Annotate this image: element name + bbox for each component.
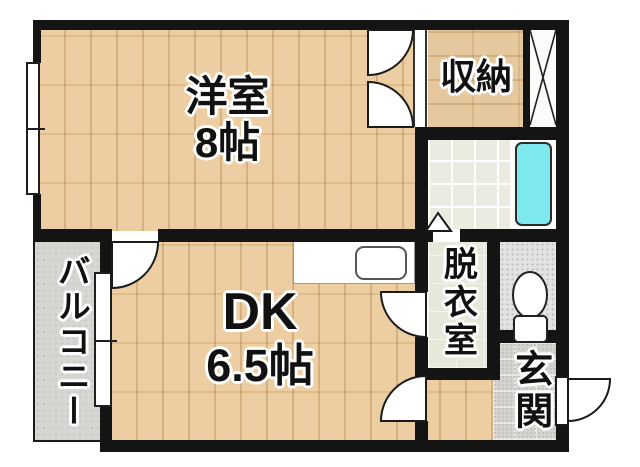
door-arc-passage [381,376,426,421]
closet-label: 収納 [424,57,528,97]
entrance-label: 玄関 [508,349,550,441]
floorplan-canvas: 洋室 8帖 収納 DK 6.5帖 バルコニー 脱衣室 玄関 [0,0,640,467]
entrance-door-leaf [556,377,568,425]
dk-label: DK 6.5帖 [150,284,370,391]
western-room-name: 洋室 [115,74,340,120]
western-room-label: 洋室 8帖 [115,74,340,166]
door-arc-entrance [568,379,610,421]
western-room-size: 8帖 [115,120,340,166]
door-arc-yoshitsu-dk [112,242,158,288]
door-arc-closet-lower [368,82,413,127]
balcony-label: バルコニー [53,254,89,439]
toilet-icon [513,272,547,342]
door-arc-dressing [381,292,426,337]
dk-name: DK [150,284,370,341]
pipe-space-x-icon [530,30,556,125]
dressing-room-label: 脱衣室 [438,246,475,374]
door-arc-closet-upper [368,30,413,75]
bath-door-triangle-icon [426,213,451,231]
dk-size: 6.5帖 [150,341,370,391]
